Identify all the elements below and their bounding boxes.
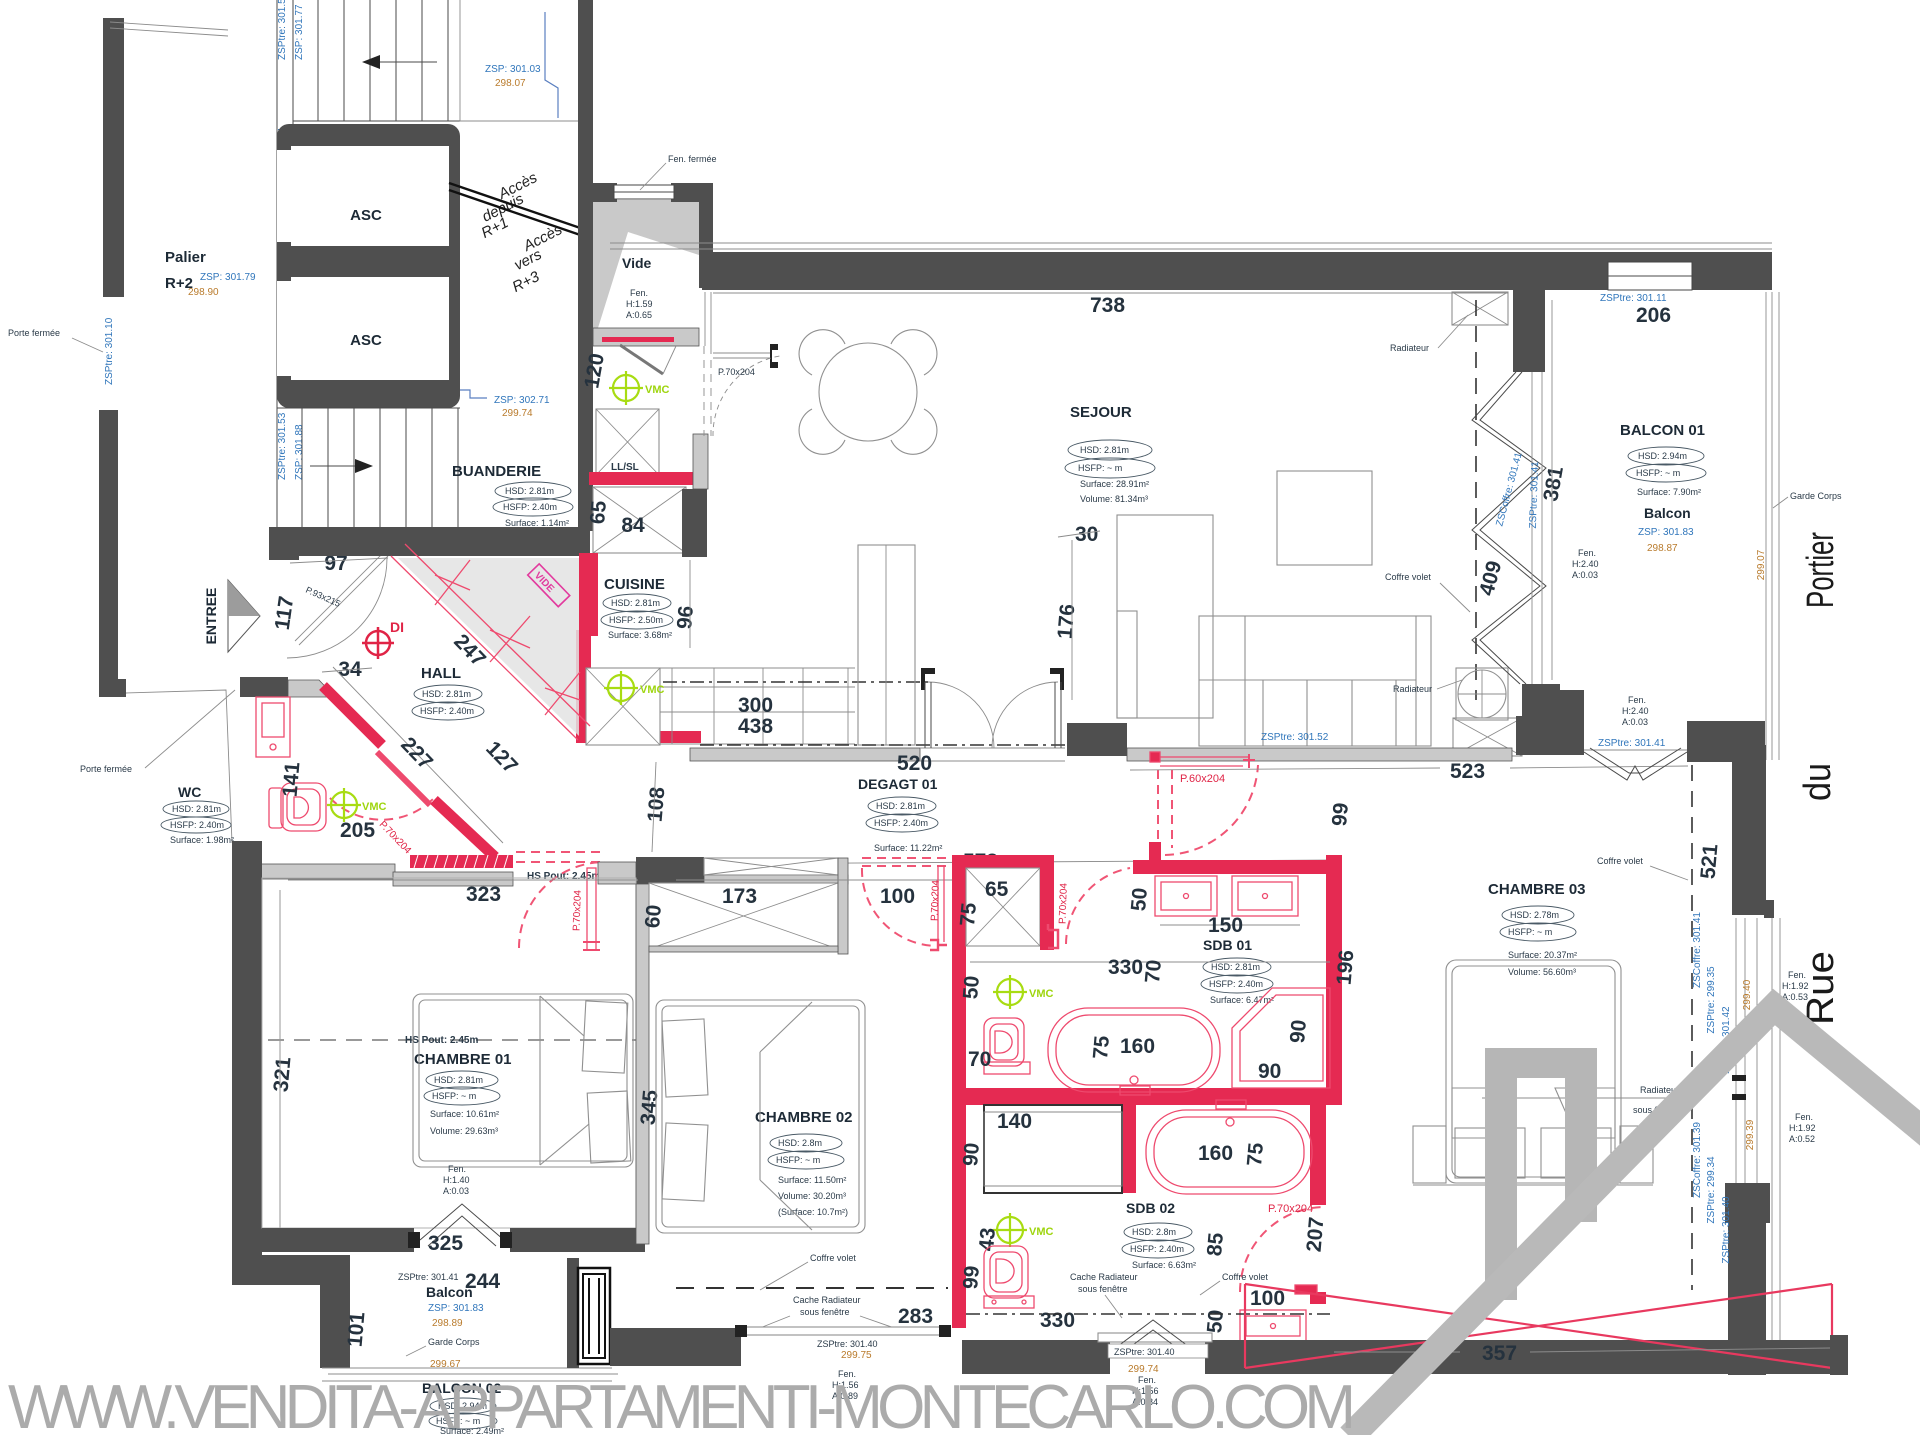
- svg-text:HSFP: ~ m: HSFP: ~ m: [1636, 468, 1680, 478]
- svg-text:ENTREE: ENTREE: [203, 588, 219, 645]
- svg-text:Surface: 6.47m²: Surface: 6.47m²: [1210, 995, 1274, 1005]
- svg-text:Surface: 1.14m²: Surface: 1.14m²: [505, 518, 569, 528]
- svg-text:Coffre volet: Coffre volet: [1222, 1272, 1268, 1282]
- svg-text:150: 150: [1208, 914, 1243, 937]
- svg-text:ZSPtre: 301.40: ZSPtre: 301.40: [1721, 1196, 1732, 1264]
- svg-text:SEJOUR: SEJOUR: [1070, 404, 1132, 421]
- svg-text:101: 101: [344, 1311, 370, 1348]
- svg-text:Surface: 3.68m²: Surface: 3.68m²: [608, 630, 672, 640]
- svg-text:Coffre volet: Coffre volet: [1597, 856, 1643, 866]
- svg-text:521: 521: [1697, 843, 1723, 880]
- svg-text:ZSPtre: 301.41: ZSPtre: 301.41: [1598, 738, 1666, 749]
- svg-text:140: 140: [997, 1110, 1032, 1133]
- svg-text:Vide: Vide: [622, 255, 652, 271]
- svg-text:ZSP: 301.88: ZSP: 301.88: [294, 424, 305, 480]
- svg-text:Volume: 30.20m³: Volume: 30.20m³: [778, 1191, 846, 1201]
- svg-text:205: 205: [340, 819, 375, 842]
- svg-text:330: 330: [1040, 1309, 1075, 1332]
- svg-text:ZSPtre: 301.52: ZSPtre: 301.52: [1261, 732, 1329, 743]
- svg-text:HSFP: ~ m: HSFP: ~ m: [432, 1091, 476, 1101]
- svg-text:206: 206: [1636, 304, 1671, 327]
- svg-text:ZSP: 301.79: ZSP: 301.79: [200, 272, 256, 283]
- svg-text:sous fenêtre: sous fenêtre: [800, 1307, 850, 1317]
- svg-text:ASC: ASC: [350, 332, 382, 349]
- svg-text:90: 90: [1286, 1019, 1311, 1044]
- svg-text:298.90: 298.90: [188, 287, 219, 298]
- svg-text:WWW.VENDITA-APPARTAMENTI-MONTE: WWW.VENDITA-APPARTAMENTI-MONTECARLO.COM: [8, 1373, 1356, 1435]
- svg-text:85: 85: [1203, 1231, 1228, 1257]
- svg-text:ZSCoffre: 301.41: ZSCoffre: 301.41: [1692, 912, 1703, 988]
- svg-text:HSD: 2.8m: HSD: 2.8m: [778, 1138, 822, 1148]
- svg-text:357: 357: [1482, 1342, 1517, 1365]
- svg-text:ZSPtre: 301.11: ZSPtre: 301.11: [1600, 293, 1667, 304]
- svg-text:176: 176: [1054, 603, 1080, 640]
- svg-text:CHAMBRE 03: CHAMBRE 03: [1488, 881, 1586, 898]
- svg-text:ZSCoffre: 301.39: ZSCoffre: 301.39: [1692, 1122, 1703, 1198]
- svg-text:Coffre volet: Coffre volet: [1385, 572, 1431, 582]
- svg-text:P.70x204: P.70x204: [1268, 1203, 1313, 1215]
- svg-text:H:2.40: H:2.40: [1572, 559, 1599, 569]
- svg-text:Coffre volet: Coffre volet: [810, 1253, 856, 1263]
- svg-text:Fen.: Fen.: [448, 1164, 466, 1174]
- svg-text:65: 65: [586, 499, 611, 525]
- svg-text:Portier: Portier: [1800, 532, 1842, 608]
- svg-text:99: 99: [1328, 802, 1353, 827]
- svg-text:Fen.: Fen.: [1788, 970, 1806, 980]
- svg-text:283: 283: [898, 1305, 933, 1328]
- svg-text:Fen.: Fen.: [1628, 695, 1646, 705]
- svg-text:298.89: 298.89: [432, 1318, 463, 1329]
- svg-text:Garde Corps: Garde Corps: [1790, 491, 1842, 501]
- svg-text:(Surface: 10.7m²): (Surface: 10.7m²): [778, 1207, 848, 1217]
- svg-text:75: 75: [1243, 1141, 1268, 1167]
- svg-text:ZSPtre: 299.34: ZSPtre: 299.34: [1706, 1156, 1717, 1224]
- svg-text:ZSPtre: 301.53: ZSPtre: 301.53: [277, 412, 288, 480]
- svg-text:438: 438: [738, 715, 773, 738]
- svg-text:141: 141: [279, 761, 305, 798]
- svg-text:ZSP: 301.03: ZSP: 301.03: [485, 64, 541, 75]
- svg-text:WC: WC: [178, 784, 201, 800]
- svg-text:ZSP: 301.77: ZSP: 301.77: [294, 4, 305, 60]
- svg-text:298.87: 298.87: [1647, 543, 1678, 554]
- svg-text:Garde Corps: Garde Corps: [428, 1337, 480, 1347]
- svg-text:299.40: 299.40: [1742, 979, 1753, 1010]
- svg-text:CHAMBRE 01: CHAMBRE 01: [414, 1051, 512, 1068]
- svg-text:du: du: [1797, 763, 1839, 801]
- svg-text:Fen.: Fen.: [630, 288, 648, 298]
- svg-text:75: 75: [956, 901, 981, 927]
- svg-text:HSD: 2.81m: HSD: 2.81m: [876, 801, 925, 811]
- svg-text:Radiateur: Radiateur: [1393, 684, 1432, 694]
- svg-text:299.74: 299.74: [502, 408, 533, 419]
- svg-text:HS Pout: 2.45m: HS Pout: 2.45m: [405, 1035, 478, 1046]
- svg-text:ZSPtre: 301.10: ZSPtre: 301.10: [104, 317, 115, 385]
- svg-text:298.07: 298.07: [495, 78, 526, 89]
- svg-text:H:1.92: H:1.92: [1782, 981, 1809, 991]
- svg-text:70: 70: [968, 1048, 991, 1071]
- svg-text:VMC: VMC: [640, 684, 665, 696]
- svg-text:HSD: 2.81m: HSD: 2.81m: [505, 486, 554, 496]
- svg-text:DEGAGT 01: DEGAGT 01: [858, 776, 938, 792]
- svg-text:Fen.: Fen.: [1578, 548, 1596, 558]
- svg-text:Balcon: Balcon: [426, 1284, 473, 1300]
- svg-text:H:2.40: H:2.40: [1622, 706, 1649, 716]
- svg-text:Radiateur: Radiateur: [1390, 343, 1429, 353]
- svg-text:HSFP: 2.40m: HSFP: 2.40m: [170, 820, 224, 830]
- svg-text:ZSPtre: 301.40: ZSPtre: 301.40: [1114, 1347, 1175, 1357]
- svg-text:299.39: 299.39: [1745, 1119, 1756, 1150]
- svg-text:HALL: HALL: [421, 665, 461, 682]
- svg-text:A:0.65: A:0.65: [626, 310, 652, 320]
- svg-text:100: 100: [880, 885, 915, 908]
- svg-text:Palier: Palier: [165, 249, 206, 266]
- svg-text:738: 738: [1090, 294, 1125, 317]
- svg-text:Fen.: Fen.: [1795, 1112, 1813, 1122]
- svg-text:HSD: 2.94m: HSD: 2.94m: [1638, 451, 1687, 461]
- svg-text:P.70x204: P.70x204: [571, 889, 583, 931]
- svg-text:HSFP: ~ m: HSFP: ~ m: [1508, 927, 1552, 937]
- svg-text:LL/SL: LL/SL: [611, 462, 639, 473]
- svg-text:sous fenêtre: sous fenêtre: [1078, 1284, 1128, 1294]
- svg-text:196: 196: [1333, 949, 1359, 986]
- svg-text:CHAMBRE 02: CHAMBRE 02: [755, 1109, 853, 1126]
- svg-text:P.60x204: P.60x204: [1180, 773, 1225, 785]
- svg-text:SDB 02: SDB 02: [1126, 1200, 1175, 1216]
- svg-text:HSFP: 2.40m: HSFP: 2.40m: [1130, 1244, 1184, 1254]
- svg-text:299.75: 299.75: [841, 1350, 872, 1361]
- svg-text:DI: DI: [390, 619, 404, 635]
- svg-text:345: 345: [637, 1089, 663, 1126]
- svg-text:117: 117: [271, 595, 298, 632]
- svg-text:ZSPtre: 301.41: ZSPtre: 301.41: [398, 1272, 459, 1282]
- svg-text:HSFP: ~ m: HSFP: ~ m: [776, 1155, 820, 1165]
- svg-text:VMC: VMC: [362, 801, 387, 813]
- svg-text:P.70x204: P.70x204: [929, 879, 941, 921]
- svg-text:HSFP: 2.50m: HSFP: 2.50m: [609, 615, 663, 625]
- svg-text:Surface: 10.61m²: Surface: 10.61m²: [430, 1109, 499, 1119]
- svg-text:207: 207: [1303, 1216, 1329, 1253]
- svg-text:HSD: 2.78m: HSD: 2.78m: [1510, 910, 1559, 920]
- svg-text:Surface: 11.22m²: Surface: 11.22m²: [874, 843, 942, 853]
- svg-text:Porte fermée: Porte fermée: [8, 328, 60, 338]
- svg-text:Surface: 1.98m²: Surface: 1.98m²: [170, 835, 234, 845]
- svg-text:Balcon: Balcon: [1644, 505, 1691, 521]
- svg-text:Porte fermée: Porte fermée: [80, 764, 132, 774]
- svg-text:VMC: VMC: [1029, 988, 1054, 1000]
- svg-text:96: 96: [673, 605, 698, 630]
- svg-text:A:0.03: A:0.03: [443, 1186, 469, 1196]
- svg-text:ZSPtre: 299.35: ZSPtre: 299.35: [1706, 966, 1717, 1034]
- svg-text:Surface: 28.91m²: Surface: 28.91m²: [1080, 479, 1149, 489]
- svg-text:Volume: 29.63m³: Volume: 29.63m³: [430, 1126, 498, 1136]
- svg-text:Cache Radiateur: Cache Radiateur: [793, 1295, 861, 1305]
- svg-text:HSFP: 2.40m: HSFP: 2.40m: [1209, 979, 1263, 989]
- svg-text:SDB 01: SDB 01: [1203, 937, 1252, 953]
- svg-text:50: 50: [1203, 1309, 1228, 1334]
- svg-text:HSD: 2.81m: HSD: 2.81m: [422, 689, 471, 699]
- svg-text:Fen. fermée: Fen. fermée: [668, 154, 717, 164]
- svg-text:ZSP: 301.83: ZSP: 301.83: [428, 1303, 484, 1314]
- svg-text:P.70x204: P.70x204: [718, 367, 755, 377]
- svg-text:75: 75: [1089, 1034, 1114, 1060]
- svg-text:H:1.40: H:1.40: [443, 1175, 470, 1185]
- svg-text:108: 108: [644, 786, 670, 823]
- svg-text:323: 323: [466, 883, 501, 906]
- svg-text:H:1.92: H:1.92: [1789, 1123, 1816, 1133]
- svg-text:HSFP: 2.40m: HSFP: 2.40m: [874, 818, 928, 828]
- svg-text:ZSPtre: 301.40: ZSPtre: 301.40: [817, 1339, 878, 1349]
- svg-text:Cache Radiateur: Cache Radiateur: [1070, 1272, 1138, 1282]
- svg-text:99: 99: [959, 1265, 984, 1290]
- svg-text:HSD: 2.81m: HSD: 2.81m: [434, 1075, 483, 1085]
- svg-text:HSFP: ~ m: HSFP: ~ m: [1078, 463, 1122, 473]
- svg-text:100: 100: [1250, 1287, 1285, 1310]
- svg-text:520: 520: [897, 752, 932, 775]
- svg-text:Surface: 7.90m²: Surface: 7.90m²: [1637, 487, 1701, 497]
- svg-text:H:1.59: H:1.59: [626, 299, 653, 309]
- svg-text:Volume: 56.60m³: Volume: 56.60m³: [1508, 967, 1576, 977]
- svg-text:ASC: ASC: [350, 207, 382, 224]
- svg-text:HSD: 2.8m: HSD: 2.8m: [1132, 1227, 1176, 1237]
- svg-text:A:0.03: A:0.03: [1572, 570, 1598, 580]
- svg-text:50: 50: [1127, 887, 1152, 912]
- svg-text:Surface: 20.37m²: Surface: 20.37m²: [1508, 950, 1577, 960]
- svg-text:325: 325: [428, 1232, 463, 1255]
- svg-text:Volume: 81.34m³: Volume: 81.34m³: [1080, 494, 1148, 504]
- svg-text:50: 50: [959, 975, 984, 1000]
- svg-text:70: 70: [1141, 959, 1166, 984]
- svg-text:P.70x204: P.70x204: [1057, 882, 1069, 924]
- svg-text:VMC: VMC: [645, 384, 670, 396]
- svg-text:60: 60: [641, 904, 666, 929]
- svg-text:Surface: 11.50m²: Surface: 11.50m²: [778, 1175, 846, 1185]
- svg-text:A:0.52: A:0.52: [1789, 1134, 1815, 1144]
- svg-text:173: 173: [722, 885, 757, 908]
- svg-text:VMC: VMC: [1029, 1226, 1054, 1238]
- svg-text:ZSPtre: 301.53: ZSPtre: 301.53: [277, 0, 288, 60]
- svg-text:523: 523: [1450, 760, 1485, 783]
- svg-text:HSD: 2.81m: HSD: 2.81m: [1211, 962, 1260, 972]
- svg-text:HSD: 2.81m: HSD: 2.81m: [1080, 445, 1129, 455]
- svg-text:160: 160: [1198, 1142, 1233, 1165]
- svg-text:A:0.03: A:0.03: [1622, 717, 1648, 727]
- svg-text:HSFP: 2.40m: HSFP: 2.40m: [503, 502, 557, 512]
- svg-text:BALCON 01: BALCON 01: [1620, 422, 1705, 439]
- svg-text:160: 160: [1120, 1035, 1155, 1058]
- svg-text:HSD: 2.81m: HSD: 2.81m: [172, 804, 221, 814]
- svg-text:299.07: 299.07: [1756, 549, 1767, 580]
- svg-text:HSD: 2.81m: HSD: 2.81m: [611, 598, 660, 608]
- svg-text:330: 330: [1108, 956, 1143, 979]
- svg-text:BUANDERIE: BUANDERIE: [452, 463, 541, 480]
- svg-text:ZSP: 301.83: ZSP: 301.83: [1638, 527, 1694, 538]
- svg-text:84: 84: [621, 514, 645, 537]
- svg-text:90: 90: [1258, 1060, 1281, 1083]
- svg-text:CUISINE: CUISINE: [604, 576, 665, 593]
- svg-text:Surface: 6.63m²: Surface: 6.63m²: [1132, 1260, 1196, 1270]
- svg-text:65: 65: [985, 878, 1009, 901]
- svg-text:321: 321: [270, 1056, 296, 1093]
- svg-text:90: 90: [959, 1142, 984, 1167]
- svg-text:HSFP: 2.40m: HSFP: 2.40m: [420, 706, 474, 716]
- svg-text:ZSP: 302.71: ZSP: 302.71: [494, 395, 550, 406]
- svg-text:300: 300: [738, 694, 773, 717]
